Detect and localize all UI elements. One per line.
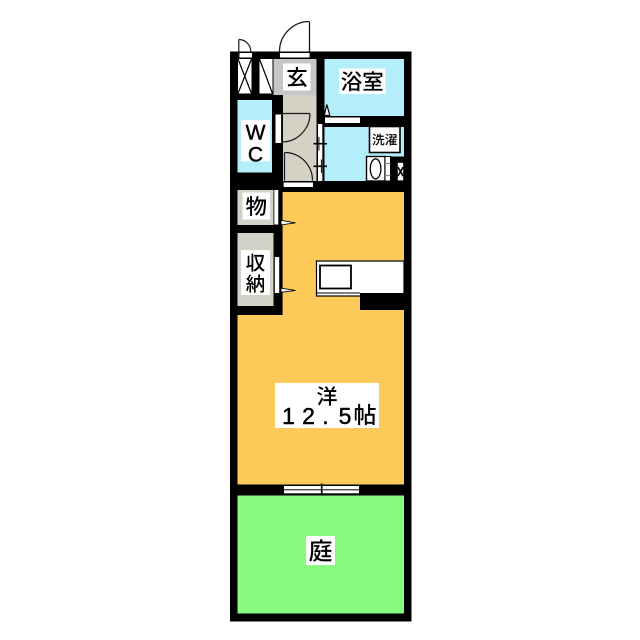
svg-text:.: . (322, 403, 328, 429)
svg-text:5: 5 (339, 403, 352, 429)
svg-text:C: C (248, 144, 263, 167)
svg-text:1: 1 (282, 403, 295, 429)
svg-text:2: 2 (302, 403, 315, 429)
svg-text:W: W (246, 122, 266, 145)
